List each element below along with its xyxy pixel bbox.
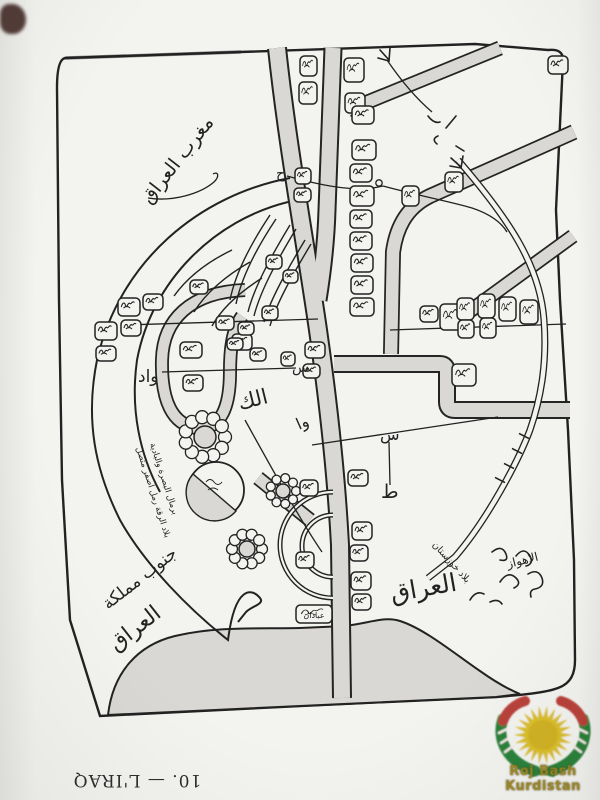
label-seen1: س	[292, 360, 309, 376]
city-label-box	[296, 552, 314, 568]
city-label-box	[478, 294, 495, 318]
city-label-box	[250, 348, 266, 361]
label-ahvaz: الاهواز	[504, 550, 539, 573]
watermark-text: Roj Bash Kurdistan	[470, 764, 600, 794]
city-label-box	[352, 106, 374, 124]
city-label-box	[352, 522, 372, 540]
city-label-box	[352, 140, 376, 160]
label-south1: جنوب مملكة	[99, 543, 181, 613]
city-label-box	[350, 186, 374, 206]
city-label-box	[96, 346, 116, 361]
city-label-box	[262, 306, 278, 320]
figure-caption: 10. — L'IRAQ	[62, 750, 212, 790]
rosette-city	[227, 529, 268, 569]
city-label-box	[227, 338, 243, 350]
city-label-box	[352, 594, 371, 610]
scanned-map-page: مغرب العراق واد الك س وا س ط ح جنوب مملك…	[0, 0, 600, 800]
city-label-box	[300, 480, 318, 496]
city-label-box	[480, 318, 496, 338]
city-label-box	[420, 306, 438, 322]
historical-map-of-iraq: مغرب العراق واد الك س وا س ط ح جنوب مملك…	[0, 0, 600, 800]
city-label-box	[499, 297, 516, 321]
city-label-box	[238, 322, 254, 335]
label-ha: ح	[276, 166, 286, 182]
city-label-box	[190, 280, 208, 294]
city-label-box	[445, 172, 463, 192]
city-label-box	[548, 56, 568, 74]
city-label-box	[95, 322, 117, 340]
label-tah: ط	[381, 481, 399, 503]
city-label-box	[121, 320, 141, 336]
rosette-city	[266, 474, 300, 509]
city-label-box	[350, 210, 372, 228]
city-label-box	[350, 545, 368, 561]
city-label-box	[350, 164, 372, 182]
label-abadan: عبادان	[303, 611, 324, 620]
label-iraq-big: العراق	[388, 568, 459, 608]
label-seen2: س	[380, 425, 400, 444]
city-label-box	[344, 58, 364, 82]
city-label-box	[458, 320, 474, 338]
label-alk: الك	[235, 384, 270, 415]
city-label-box	[350, 298, 374, 316]
label-wad: واد	[138, 367, 159, 387]
city-label-box	[183, 375, 203, 391]
scan-corner-mark	[0, 4, 26, 34]
city-label-box	[299, 82, 317, 104]
gulf-water	[108, 619, 520, 715]
city-label-box	[283, 270, 298, 283]
city-label-box	[180, 342, 202, 358]
label-northwest: مغرب العراق	[137, 112, 219, 208]
city-label-box	[143, 294, 163, 310]
city-label-box	[305, 342, 325, 358]
city-label-box	[300, 56, 317, 76]
city-label-box	[294, 188, 311, 202]
city-label-box	[350, 232, 372, 250]
city-label-box	[520, 300, 538, 324]
city-label-box	[348, 470, 368, 486]
city-label-box	[216, 316, 234, 330]
half-shaded-circle	[186, 462, 244, 521]
city-label-box	[295, 168, 311, 184]
city-label-box	[266, 255, 282, 269]
city-label-box	[457, 298, 474, 320]
city-label-box	[402, 186, 419, 206]
city-label-box	[351, 572, 371, 590]
city-label-box	[118, 298, 140, 316]
city-label-box	[351, 276, 373, 294]
city-label-box	[351, 254, 373, 272]
label-wa: وا	[293, 411, 312, 434]
city-label-box	[452, 364, 476, 386]
